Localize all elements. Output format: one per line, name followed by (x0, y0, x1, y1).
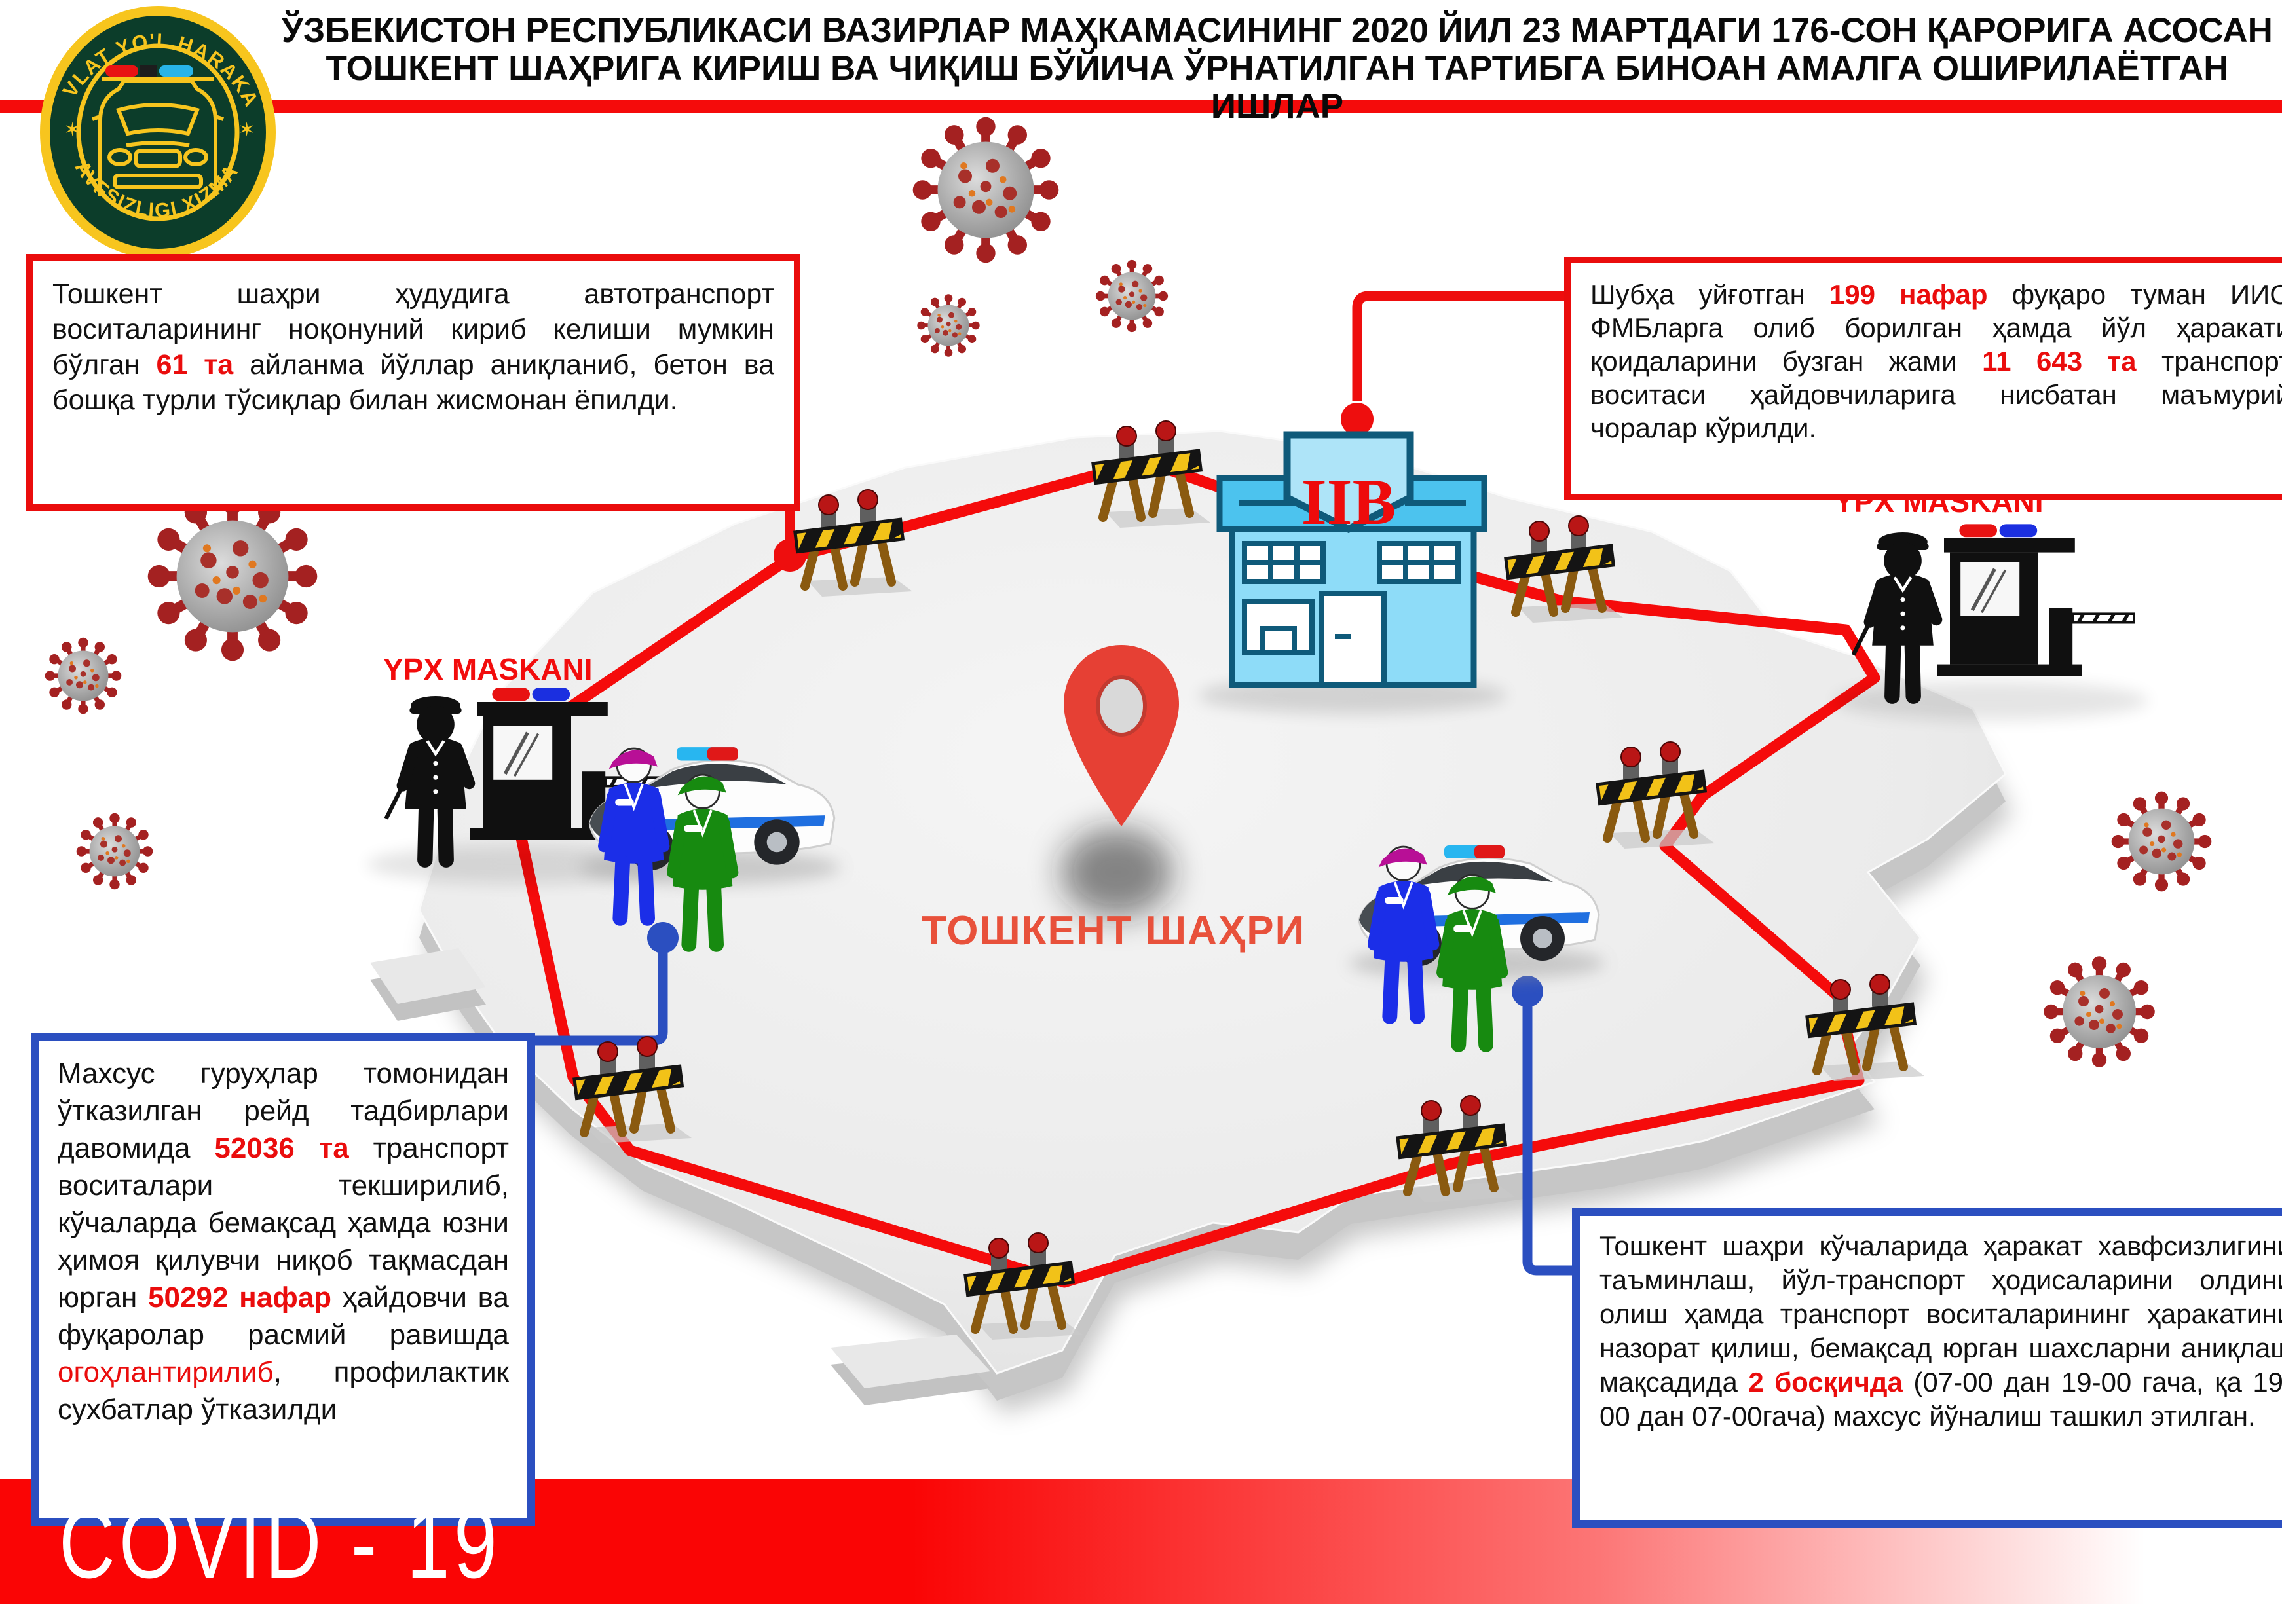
checkpoint-left-label: YPX MASKANI (383, 652, 592, 686)
virus-icon (913, 117, 1059, 263)
city-label: ТОШКЕНТ ШАҲРИ (922, 908, 1305, 953)
highlight-2-stages: 2 босқичда (1748, 1367, 1903, 1397)
highlight-199: 199 нафар (1829, 279, 1988, 310)
highlight-52036: 52036 та (214, 1132, 348, 1164)
connector-dot-right-blue (1512, 976, 1543, 1007)
text-segment: Шубҳа уйғотган (1590, 279, 1829, 310)
checkpoint-icon (1853, 524, 2133, 696)
covid-banner-label: COVID - 19 (59, 1486, 501, 1601)
highlight-61: 61 та (157, 349, 234, 380)
badge-star-right: ✶ (238, 119, 255, 141)
road-safety-badge-logo: ✶ ✶ DAVLAT YO'L HARAKATI XAVFSIZLIGI XIZ… (38, 4, 278, 261)
badge-star-left: ✶ (64, 119, 81, 141)
virus-icon (148, 492, 318, 661)
virus-icon (917, 294, 979, 356)
callout-raids: Махсус гуруҳлар томонидан ўтказилган рей… (31, 1033, 535, 1526)
connector-dot-right-red (1341, 403, 1374, 435)
highlight-11643: 11 643 та (1982, 346, 2136, 377)
callout-patrol-shifts: Тошкент шаҳри кўчаларида ҳаракат хавфсиз… (1572, 1208, 2282, 1528)
virus-icon (45, 638, 122, 714)
callout-violators: Шубҳа уйғотган 199 нафар фуқаро туман ИИ… (1564, 257, 2282, 500)
callout-roads-closed: Тошкент шаҳри ҳудудига автотранспорт вос… (26, 254, 800, 511)
virus-icon (2044, 956, 2155, 1067)
virus-icon (77, 813, 153, 890)
iib-sign-label: IIB (1301, 466, 1396, 538)
infographic-page: ЎЗБЕКИСТОН РЕСПУБЛИКАСИ ВАЗИРЛАР МАҲКАМА… (0, 0, 2282, 1624)
virus-icon (1096, 260, 1168, 332)
iib-building: IIB (1199, 435, 1506, 714)
highlight-warned: огоҳлантирилиб (58, 1356, 274, 1388)
highlight-50292: 50292 нафар (148, 1282, 331, 1314)
virus-icon (2112, 792, 2212, 892)
connector-dot-left-blue (647, 922, 679, 953)
